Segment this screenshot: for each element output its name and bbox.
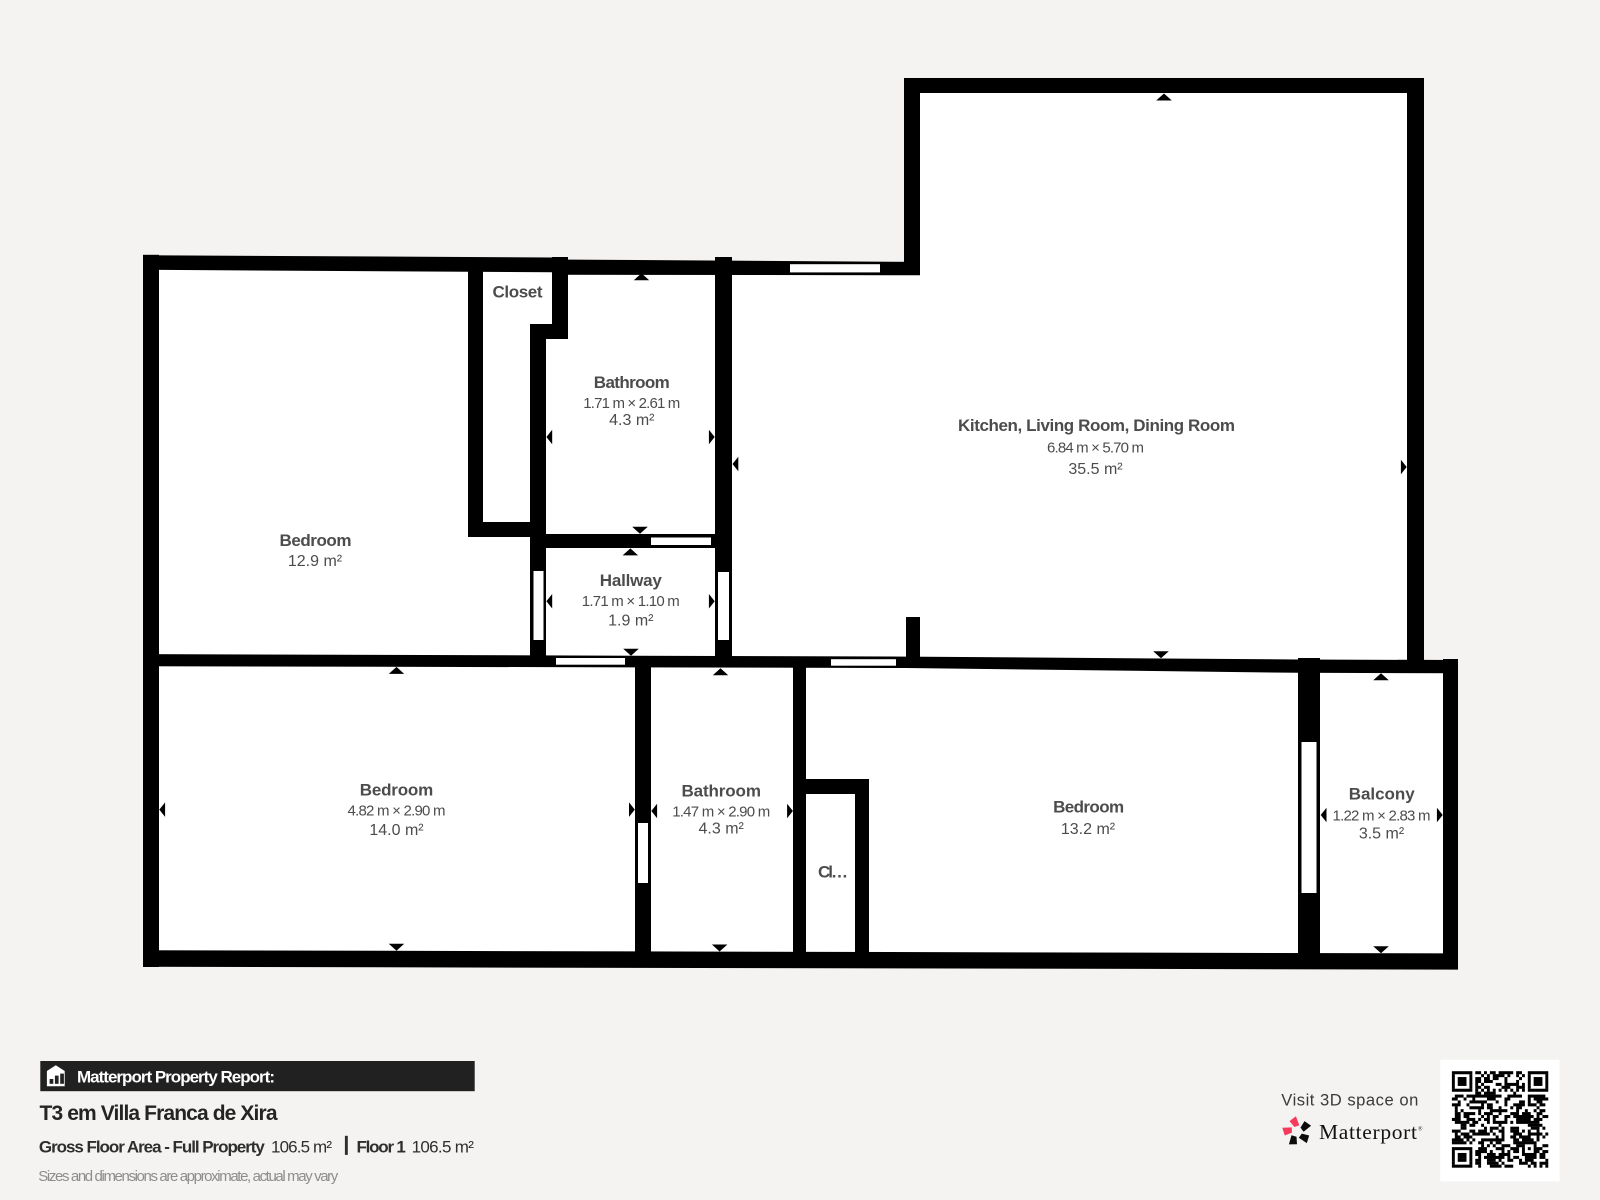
svg-text:Matterport Property Report:: Matterport Property Report:: [77, 1067, 275, 1086]
svg-text:6.84 m × 5.70 m: 6.84 m × 5.70 m: [1047, 440, 1144, 457]
svg-text:Bedroom: Bedroom: [360, 781, 434, 800]
svg-text:1.71 m × 2.61 m: 1.71 m × 2.61 m: [583, 395, 680, 412]
svg-text:106.5 m²: 106.5 m²: [271, 1138, 332, 1157]
svg-text:106.5 m²: 106.5 m²: [412, 1138, 475, 1157]
svg-text:Visit 3D space on: Visit 3D space on: [1281, 1091, 1418, 1110]
svg-text:1.9 m²: 1.9 m²: [608, 613, 654, 630]
svg-text:Kitchen, Living Room, Dining R: Kitchen, Living Room, Dining Room: [958, 416, 1235, 435]
svg-text:Cl…: Cl…: [818, 862, 848, 881]
svg-text:1.47 m × 2.90 m: 1.47 m × 2.90 m: [672, 804, 770, 821]
svg-text:14.0 m²: 14.0 m²: [369, 822, 424, 839]
svg-text:3.5 m²: 3.5 m²: [1359, 826, 1405, 843]
svg-text:1.22 m × 2.83 m: 1.22 m × 2.83 m: [1333, 808, 1431, 825]
svg-text:4.82 m × 2.90 m: 4.82 m × 2.90 m: [348, 803, 446, 820]
svg-text:Bathroom: Bathroom: [681, 782, 761, 801]
svg-text:®: ®: [1418, 1125, 1423, 1132]
svg-text:Balcony: Balcony: [1349, 784, 1416, 803]
svg-text:Hallway: Hallway: [600, 571, 663, 590]
svg-text:Bedroom: Bedroom: [280, 531, 352, 550]
svg-text:Bathroom: Bathroom: [594, 373, 670, 392]
svg-text:12.9 m²: 12.9 m²: [288, 553, 343, 570]
svg-text:T3 em Villa Franca de Xira: T3 em Villa Franca de Xira: [40, 1102, 278, 1125]
svg-text:4.3 m²: 4.3 m²: [699, 821, 745, 838]
svg-text:Gross Floor Area - Full Proper: Gross Floor Area - Full Property: [39, 1138, 266, 1157]
svg-text:Floor 1: Floor 1: [357, 1138, 406, 1157]
svg-text:13.2 m²: 13.2 m²: [1061, 821, 1116, 838]
svg-text:1.71 m × 1.10 m: 1.71 m × 1.10 m: [582, 593, 680, 610]
svg-text:4.3 m²: 4.3 m²: [609, 412, 655, 429]
svg-text:Bedroom: Bedroom: [1053, 797, 1124, 816]
svg-text:Sizes and dimensions are appro: Sizes and dimensions are approximate, ac…: [38, 1168, 339, 1185]
svg-text:35.5 m²: 35.5 m²: [1068, 461, 1123, 478]
svg-text:Closet: Closet: [493, 282, 543, 301]
svg-text:Matterport: Matterport: [1319, 1120, 1417, 1144]
